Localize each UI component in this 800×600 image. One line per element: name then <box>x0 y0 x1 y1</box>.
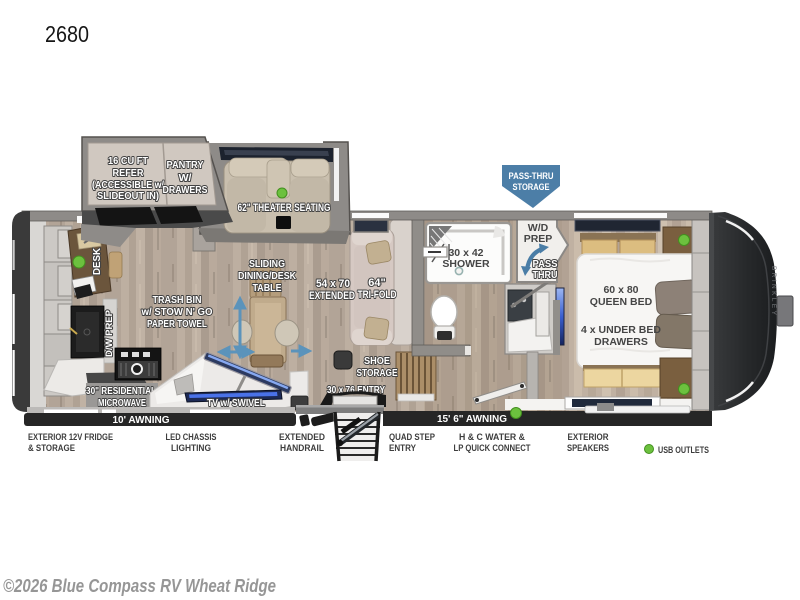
svg-text:BRINKLEY: BRINKLEY <box>770 266 777 317</box>
svg-text:DRAWERS: DRAWERS <box>163 184 208 196</box>
svg-text:LP QUICK CONNECT: LP QUICK CONNECT <box>454 443 531 454</box>
svg-text:SHOWER: SHOWER <box>442 258 490 270</box>
svg-text:TABLE: TABLE <box>253 282 282 294</box>
svg-text:30" RESIDENTIAL: 30" RESIDENTIAL <box>86 385 156 397</box>
svg-text:PASS-THRU: PASS-THRU <box>509 171 554 182</box>
svg-text:2680: 2680 <box>45 21 89 47</box>
svg-text:60 x 80: 60 x 80 <box>603 284 638 296</box>
svg-text:PASS: PASS <box>533 259 558 270</box>
svg-text:HANDRAIL: HANDRAIL <box>280 443 324 454</box>
svg-text:54 x 70: 54 x 70 <box>316 278 350 290</box>
svg-text:QUEEN BED: QUEEN BED <box>590 296 653 308</box>
svg-text:DESK: DESK <box>91 248 103 275</box>
svg-text:STORAGE: STORAGE <box>513 182 550 193</box>
svg-text:15' 6" AWNING: 15' 6" AWNING <box>437 414 507 425</box>
svg-text:PAPER TOWEL: PAPER TOWEL <box>147 318 207 330</box>
svg-text:SHOE: SHOE <box>364 355 390 367</box>
svg-text:EXTENDED: EXTENDED <box>279 432 325 443</box>
svg-text:SLIDEOUT IN): SLIDEOUT IN) <box>97 190 159 202</box>
svg-text:ENTRY: ENTRY <box>389 443 416 454</box>
svg-text:10' AWNING: 10' AWNING <box>112 415 169 426</box>
svg-text:LED CHASSIS: LED CHASSIS <box>166 432 217 443</box>
svg-text:EXTERIOR 12V FRIDGE: EXTERIOR 12V FRIDGE <box>28 432 113 443</box>
svg-text:PREP: PREP <box>524 233 553 245</box>
svg-text:©2026 Blue Compass RV Wheat Ri: ©2026 Blue Compass RV Wheat Ridge <box>3 575 276 596</box>
svg-text:64": 64" <box>368 277 385 289</box>
svg-text:EXTERIOR: EXTERIOR <box>568 432 609 443</box>
svg-text:62" THEATER SEATING: 62" THEATER SEATING <box>238 202 331 214</box>
svg-text:TRASH BIN: TRASH BIN <box>153 294 202 306</box>
svg-text:DRAWERS: DRAWERS <box>594 336 648 348</box>
svg-text:16 CU FT: 16 CU FT <box>108 155 149 167</box>
svg-text:DINING/DESK: DINING/DESK <box>238 270 296 282</box>
svg-text:w/ STOW N' GO: w/ STOW N' GO <box>141 306 213 318</box>
svg-text:USB OUTLETS: USB OUTLETS <box>658 445 709 456</box>
svg-text:THRU: THRU <box>533 270 558 281</box>
svg-text:4 x UNDER BED: 4 x UNDER BED <box>581 324 661 336</box>
svg-text:REFER: REFER <box>113 167 144 179</box>
svg-text:D/W PREP: D/W PREP <box>104 309 115 357</box>
svg-text:STORAGE: STORAGE <box>357 367 398 379</box>
svg-text:EXTENDED: EXTENDED <box>309 290 355 302</box>
svg-text:PANTRY: PANTRY <box>167 159 204 171</box>
svg-text:H & C WATER &: H & C WATER & <box>459 432 525 443</box>
svg-text:QUAD STEP: QUAD STEP <box>389 432 435 443</box>
svg-text:& STORAGE: & STORAGE <box>28 443 75 454</box>
svg-text:TRI-FOLD: TRI-FOLD <box>358 289 397 301</box>
svg-text:SPEAKERS: SPEAKERS <box>567 443 609 454</box>
svg-text:SLIDING: SLIDING <box>249 258 285 270</box>
svg-text:LIGHTING: LIGHTING <box>171 443 211 454</box>
svg-text:W/: W/ <box>179 172 192 184</box>
